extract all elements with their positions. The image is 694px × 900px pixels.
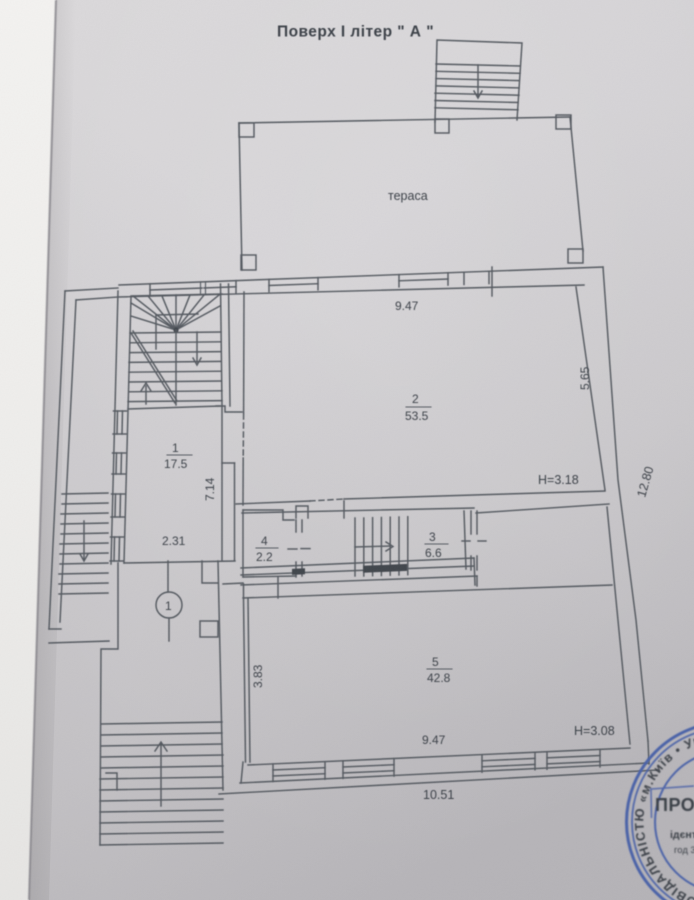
svg-text:год 3: год 3 bbox=[674, 845, 694, 856]
svg-text:ідєнт: ідєнт bbox=[670, 829, 694, 841]
svg-text:ПРОЕКТ: ПРОЕКТ bbox=[655, 795, 694, 815]
